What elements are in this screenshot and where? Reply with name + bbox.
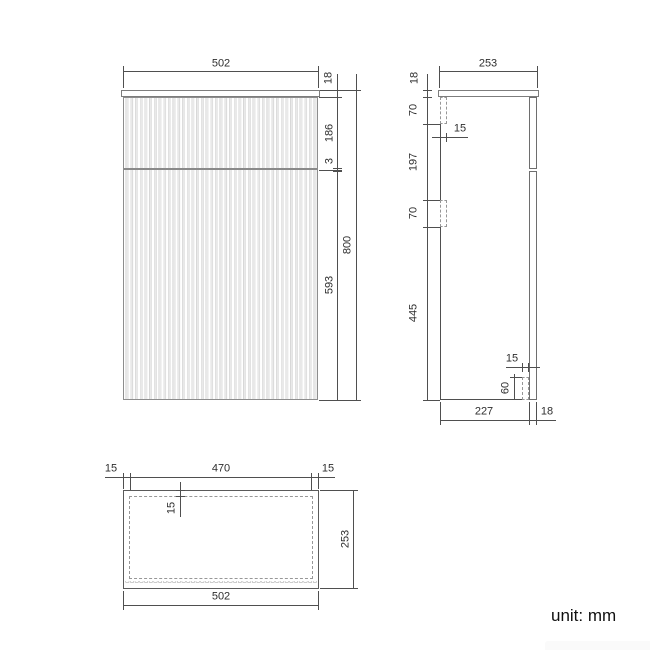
dim-line <box>427 74 428 400</box>
dim-tick <box>440 133 441 142</box>
side-bottom-bracket <box>522 377 529 400</box>
dim-side-hinge-depth: 15 <box>454 124 466 135</box>
dim-tick <box>423 90 432 91</box>
dim-front-overall-width: 502 <box>212 59 230 70</box>
dim-line <box>180 482 181 517</box>
side-hinge-bracket-bottom <box>440 200 447 227</box>
dim-tick <box>510 399 519 400</box>
dim-side-hinge-bottom: 70 <box>409 207 420 219</box>
dim-plan-right-inset: 15 <box>322 464 334 475</box>
dim-side-front-panel: 18 <box>541 407 553 418</box>
plan-inner-panel <box>129 496 313 579</box>
extension-line <box>439 75 440 88</box>
front-drawer-door-gap <box>124 168 317 170</box>
dim-line <box>353 490 354 588</box>
extension-line <box>318 591 319 608</box>
dim-front-lower-front: 593 <box>325 276 336 294</box>
dim-tick <box>528 363 529 372</box>
extension-line <box>424 227 440 228</box>
dim-tick <box>176 496 185 497</box>
dim-side-top-panel: 18 <box>410 72 421 84</box>
extension-line <box>440 402 441 423</box>
extension-line <box>319 97 342 98</box>
dim-line <box>337 74 338 400</box>
dim-front-upper-front: 186 <box>325 124 336 142</box>
dim-side-hinge-spacing: 197 <box>409 153 420 171</box>
side-back-edge <box>440 97 441 400</box>
extension-line <box>510 377 522 378</box>
dim-line <box>439 71 537 72</box>
dim-tick <box>439 66 440 75</box>
dim-tick <box>522 363 523 372</box>
extension-line <box>320 588 356 589</box>
side-top-panel <box>438 90 539 97</box>
side-lower-front-panel <box>529 171 537 400</box>
extension-line <box>318 481 319 489</box>
dim-line <box>123 71 318 72</box>
front-top-panel <box>121 90 320 97</box>
plan-fluted-front-profile <box>125 581 317 586</box>
dim-tick <box>176 490 185 491</box>
dim-tick <box>352 90 361 91</box>
dim-tick <box>333 171 342 172</box>
extension-line <box>123 75 124 88</box>
extension-line <box>319 170 342 171</box>
extension-line <box>320 490 356 491</box>
front-fluted-fronts <box>123 97 318 400</box>
dim-side-bracket-depth: 15 <box>506 354 518 365</box>
extension-line <box>536 402 537 423</box>
side-upper-front-panel <box>529 97 537 169</box>
dim-line <box>123 605 318 606</box>
dim-front-top-panel: 18 <box>324 72 335 84</box>
dim-plan-inner-width: 470 <box>212 464 230 475</box>
extension-line <box>529 402 530 423</box>
extension-line <box>537 75 538 88</box>
dim-tick <box>123 66 124 75</box>
extension-line <box>123 591 124 608</box>
dim-front-overall-height: 800 <box>343 236 354 254</box>
extension-line <box>318 75 319 88</box>
extension-line <box>424 200 440 201</box>
dim-side-carcass-depth: 227 <box>475 407 493 418</box>
dim-plan-overall-width: 502 <box>212 592 230 603</box>
technical-drawing: 502 18 186 3 593 800 253 <box>0 0 650 650</box>
dim-side-overall-depth: 253 <box>479 59 497 70</box>
dim-line <box>105 477 335 478</box>
extension-line <box>123 481 124 489</box>
dim-tick <box>318 66 319 75</box>
dim-plan-overall-depth: 253 <box>341 530 352 548</box>
dim-plan-panel-thickness: 15 <box>167 502 178 514</box>
extension-line <box>424 400 440 401</box>
dim-line <box>506 367 540 368</box>
dim-line <box>432 137 468 138</box>
dim-tick <box>446 133 447 142</box>
dim-tick <box>352 400 361 401</box>
side-hinge-bracket-top <box>440 97 447 124</box>
unit-note: unit: mm <box>551 606 616 626</box>
dim-tick <box>537 66 538 75</box>
dim-side-bottom-section: 445 <box>409 304 420 322</box>
dim-front-gap: 3 <box>325 158 336 164</box>
dim-plan-left-inset: 15 <box>105 464 117 475</box>
corner-box <box>545 641 650 650</box>
dim-side-hinge-top-offset: 70 <box>409 104 420 116</box>
dim-line <box>356 74 357 400</box>
extension-line <box>424 124 440 125</box>
dim-line <box>440 420 556 421</box>
dim-tick <box>423 97 432 98</box>
dim-side-bracket-height: 60 <box>501 382 512 394</box>
